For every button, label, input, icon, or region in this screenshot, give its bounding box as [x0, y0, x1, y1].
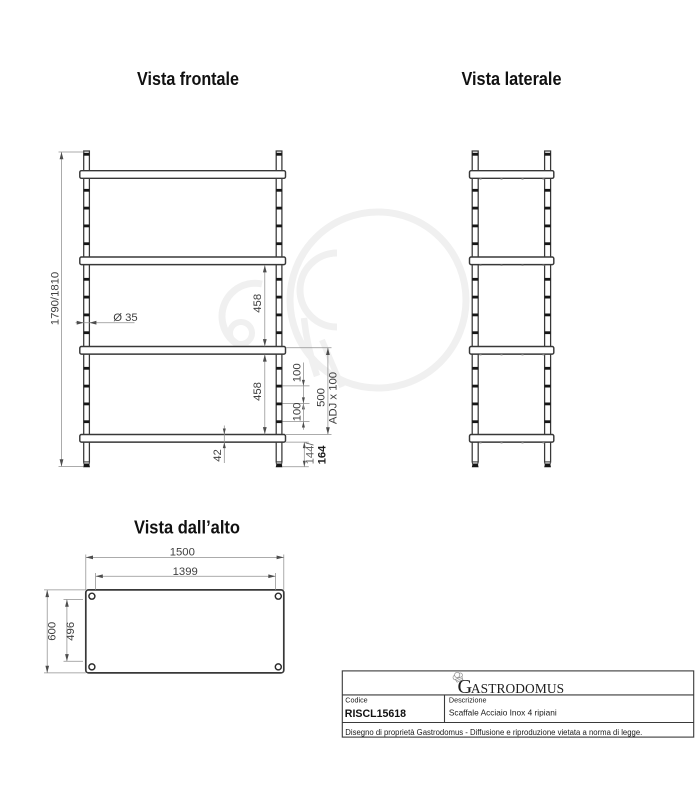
svg-text:1399: 1399 [173, 566, 198, 578]
svg-text:1790/1810: 1790/1810 [50, 272, 62, 325]
svg-text:500: 500 [315, 388, 327, 407]
svg-text:496: 496 [65, 622, 77, 641]
svg-text:458: 458 [252, 382, 264, 401]
svg-text:Disegno di proprietà Gastrodom: Disegno di proprietà Gastrodomus - Diffu… [345, 728, 642, 737]
svg-text:Scaffale Acciaio Inox 4 ripian: Scaffale Acciaio Inox 4 ripiani [449, 708, 557, 718]
svg-text:Vista laterale: Vista laterale [462, 68, 562, 89]
svg-text:1500: 1500 [170, 546, 195, 558]
svg-text:164: 164 [317, 445, 329, 465]
svg-text:Descrizione: Descrizione [449, 695, 487, 704]
svg-text:ASTRODOMUS: ASTRODOMUS [471, 681, 564, 696]
svg-text:Codice: Codice [345, 695, 367, 704]
svg-text:42: 42 [212, 449, 224, 462]
svg-text:RISCL15618: RISCL15618 [345, 708, 406, 720]
svg-text:ADJ x 100: ADJ x 100 [327, 372, 339, 424]
svg-text:Ø 35: Ø 35 [113, 312, 138, 324]
svg-text:600: 600 [46, 622, 58, 641]
svg-text:Vista dall’alto: Vista dall’alto [134, 517, 240, 538]
svg-text:144/: 144/ [305, 442, 317, 465]
svg-text:458: 458 [252, 294, 264, 313]
svg-text:100: 100 [292, 403, 304, 422]
svg-text:Vista frontale: Vista frontale [137, 68, 239, 89]
svg-text:100: 100 [292, 363, 304, 382]
